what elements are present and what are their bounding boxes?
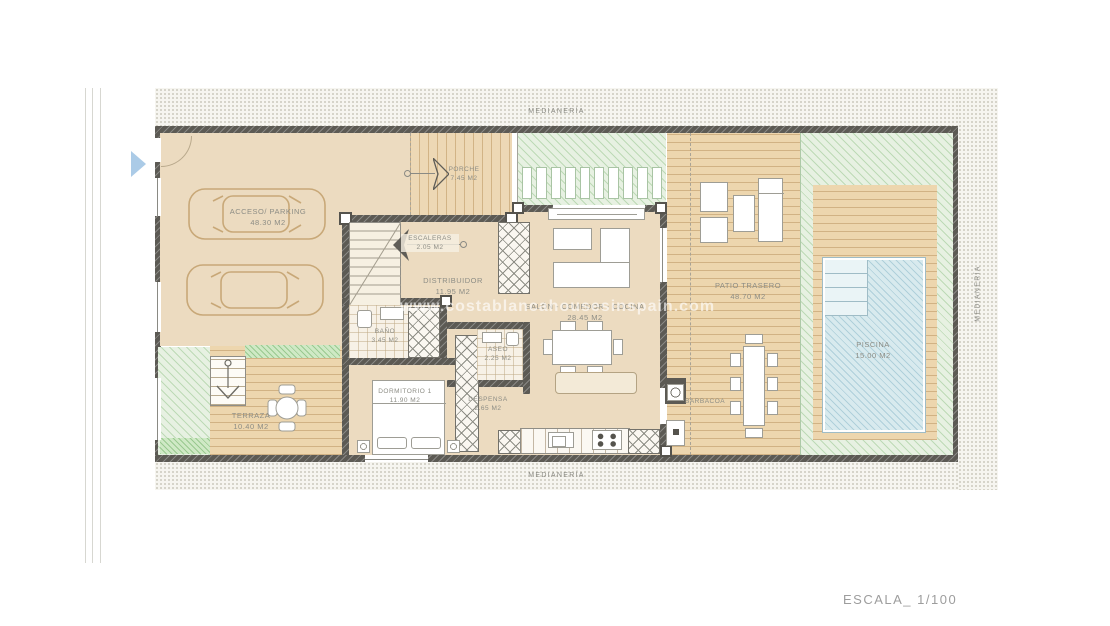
party-wall-top xyxy=(155,126,958,133)
room-label-barbacoa: BARBACOA xyxy=(685,397,733,406)
patio-chair xyxy=(767,353,778,367)
sofa-main xyxy=(553,262,630,288)
nightstand xyxy=(357,440,370,453)
room-label-despensa: DESPENSA2.65 m2 xyxy=(460,395,516,413)
watermark: www.costablancahousesinspain.com xyxy=(400,298,712,316)
leader-dot xyxy=(460,241,467,248)
party-strip-top: MEDIANERÍA xyxy=(155,88,998,127)
room-label-aseo: ASEO2.25 m2 xyxy=(470,345,526,363)
patio-chair xyxy=(730,353,741,367)
patio-sofa xyxy=(700,217,728,243)
kitchen-cabinet xyxy=(628,429,660,454)
wc-toilet xyxy=(506,332,519,346)
left-boundary-line xyxy=(100,88,101,563)
left-boundary-line xyxy=(92,88,93,563)
location-arrow-icon xyxy=(131,151,146,177)
patio-dining-table xyxy=(743,346,765,426)
wall-wc-top xyxy=(447,322,530,329)
terrace-window xyxy=(155,378,161,440)
hob xyxy=(592,430,622,450)
party-wall-bottom xyxy=(155,455,958,462)
floor-plan-page: MEDIANERÍA MEDIANERÍA MEDIANERÍA xyxy=(0,0,1110,626)
medianeria-label-right: MEDIANERÍA xyxy=(975,259,982,329)
car xyxy=(185,260,325,320)
room-label-patio: PATIO TRASERO48.70 m2 xyxy=(713,281,783,302)
patio-chair xyxy=(745,334,763,344)
patio-dashed-line xyxy=(690,133,691,455)
patio-chair xyxy=(730,377,741,391)
party-strip-bottom: MEDIANERÍA xyxy=(155,462,998,490)
patio-chair xyxy=(745,428,763,438)
room-label-escaleras: ESCALERAS2.05 m2 xyxy=(401,234,459,252)
patio-chair xyxy=(767,377,778,391)
kitchen-sink xyxy=(548,432,574,448)
room-label-acceso: ACCESO/ PARKING48.30 m2 xyxy=(223,207,313,228)
pool-steps xyxy=(825,260,868,316)
scale-label: ESCALA_ 1/100 xyxy=(843,592,1013,607)
patio-coffee-table xyxy=(733,195,755,232)
room-label-porche: PORCHE7.45 m2 xyxy=(437,165,491,183)
wall-hall-top xyxy=(342,215,517,222)
column xyxy=(660,445,672,457)
pillow xyxy=(411,437,441,449)
column xyxy=(655,202,667,214)
corner-planter xyxy=(160,438,210,454)
wall-bedroom-top xyxy=(342,358,465,365)
sun-lounger xyxy=(758,178,783,242)
toilet xyxy=(357,310,372,328)
living-room-window-east xyxy=(660,228,667,282)
party-strip-right: MEDIANERÍA xyxy=(958,88,998,490)
sink-basin xyxy=(552,436,566,447)
sofa-chaise xyxy=(553,228,592,250)
shaft xyxy=(498,222,530,294)
patio-sofa xyxy=(700,182,728,212)
room-label-piscina: PISCINA15.00 m2 xyxy=(842,340,904,361)
bbq-grill xyxy=(667,384,684,401)
entry-dot xyxy=(404,170,411,177)
floor-plan: MEDIANERÍA MEDIANERÍA MEDIANERÍA xyxy=(155,88,998,490)
garage-window xyxy=(155,282,161,332)
lounger-line xyxy=(759,193,784,194)
bbq-sink xyxy=(673,429,679,435)
front-garden xyxy=(517,133,666,205)
chair xyxy=(543,339,553,355)
terrace-planter-strip xyxy=(245,345,340,358)
entry-line xyxy=(411,173,435,174)
tv-unit xyxy=(548,208,645,220)
room-label-dormitorio: DORMITORIO 111.90 m2 xyxy=(367,387,443,405)
bbq-counter xyxy=(666,420,685,446)
wc-sink xyxy=(482,332,502,343)
stairs-direction-arrow-icon xyxy=(215,358,241,402)
medianeria-label-top: MEDIANERÍA xyxy=(155,108,958,115)
nightstand xyxy=(447,440,460,453)
patio-chair xyxy=(767,401,778,415)
room-label-distribuidor: DISTRIBUIDOR11.95 m2 xyxy=(413,276,493,297)
room-label-bano: BAÑO3.45 m2 xyxy=(355,327,415,345)
garage-window xyxy=(155,178,161,216)
dining-table xyxy=(552,330,612,365)
wall-garage-interior xyxy=(342,215,349,455)
room-label-terraza: TERRAZA10.40 m2 xyxy=(221,411,281,432)
chair xyxy=(613,339,623,355)
column xyxy=(512,202,524,214)
pergola-slats xyxy=(522,167,662,199)
bedroom-window xyxy=(365,455,428,462)
medianeria-label-bottom: MEDIANERÍA xyxy=(155,472,958,479)
left-boundary-line xyxy=(85,88,86,563)
tv-line xyxy=(557,214,637,215)
kitchen-cabinet xyxy=(498,430,522,454)
kitchen-island xyxy=(555,372,637,394)
pillow xyxy=(377,437,407,449)
